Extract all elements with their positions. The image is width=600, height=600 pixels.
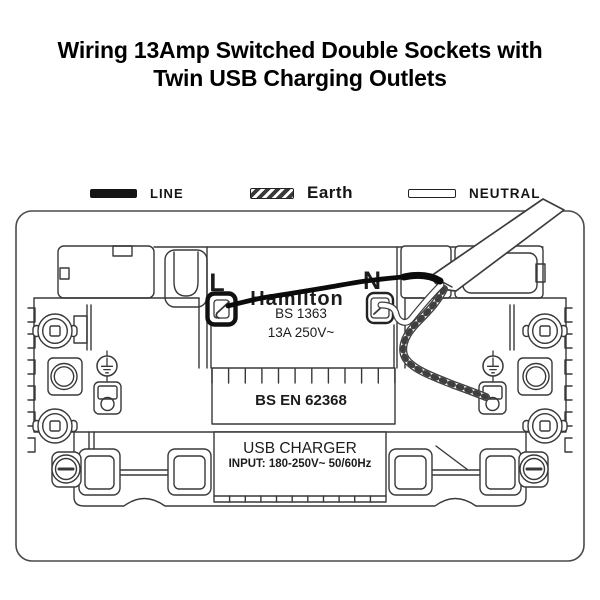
socket-standard-marking: BS 1363 (275, 306, 327, 321)
usb-charger-title: USB CHARGER (243, 440, 357, 457)
usb-input-rating: INPUT: 180-250V~ 50/60Hz (229, 458, 372, 470)
live-terminal-label: L (209, 269, 224, 297)
live-terminal (208, 294, 236, 325)
earth-clamp-left (94, 382, 121, 414)
bottom-screw-left (52, 452, 81, 487)
fixing-hole-left (48, 358, 82, 395)
wiring-diagram: L N Hamilton BS 1363 13A 250V~ BS EN 623… (0, 0, 600, 600)
usb-standard-marking: BS EN 62368 (255, 392, 347, 409)
rating-marking: 13A 250V~ (268, 325, 335, 340)
bottom-screw-right (519, 452, 548, 487)
fixing-hole-right (518, 358, 552, 395)
